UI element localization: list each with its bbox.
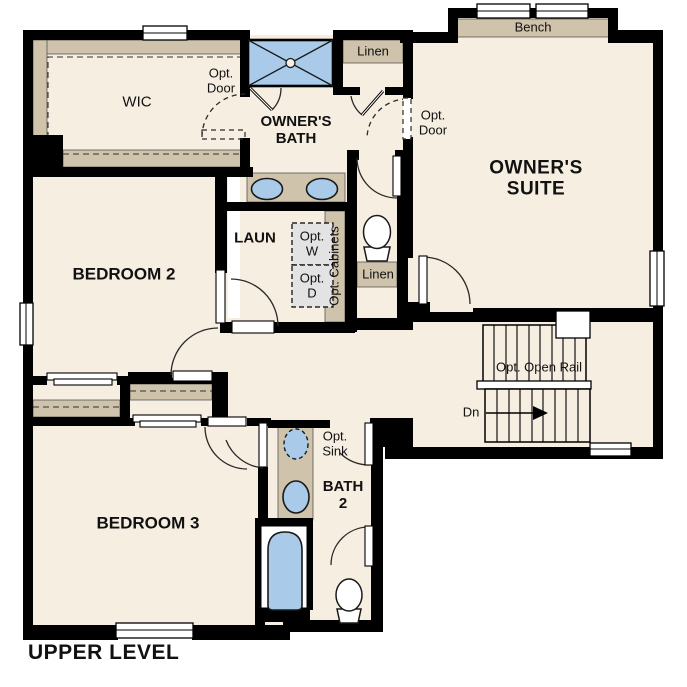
label-owners-bath: OWNER'S BATH xyxy=(260,114,331,148)
window-stair-hall xyxy=(590,443,631,456)
bath2-sink xyxy=(283,481,309,513)
label-opt-washer-line2: W xyxy=(300,244,325,259)
label-linen-upper: Linen xyxy=(357,45,389,60)
label-opt-sink-line2: Sink xyxy=(322,444,347,459)
plan-title: UPPER LEVEL xyxy=(28,641,179,665)
label-opt-washer-line1: Opt. xyxy=(300,229,325,244)
sliding-door-closet-left-panel xyxy=(54,379,112,385)
label-owners-bath-line1: OWNER'S xyxy=(260,114,331,131)
window-bedroom2 xyxy=(20,303,33,345)
label-opt-dryer: Opt. D xyxy=(300,271,325,300)
window-bay-left xyxy=(477,4,530,18)
label-opt-washer: Opt. W xyxy=(300,229,325,258)
label-opt-sink: Opt. Sink xyxy=(322,429,347,458)
label-bedroom3: BEDROOM 3 xyxy=(97,513,200,532)
label-suite-opt-door-line1: Opt. xyxy=(419,108,447,123)
label-suite-opt-door-line2: Door xyxy=(419,123,447,138)
wic-shelf-bottom xyxy=(63,150,243,167)
shower xyxy=(248,40,333,86)
staircase xyxy=(477,311,591,442)
label-linen-hall: Linen xyxy=(362,268,394,283)
closet-shelf-left xyxy=(33,400,120,417)
floor-plan-canvas xyxy=(0,0,687,687)
sliding-door-closet-right-panel xyxy=(140,421,196,427)
floor-plan: WIC Opt. Door OWNER'S BATH Linen Opt. Do… xyxy=(0,0,687,687)
laundry-doorway xyxy=(232,321,274,333)
bath2-compartment-door-leaf xyxy=(365,526,373,566)
bedroom3-doorway xyxy=(208,417,246,426)
label-owners-suite: OWNER'S SUITE xyxy=(489,158,583,201)
label-owners-suite-line2: SUITE xyxy=(489,179,583,200)
label-opt-cabinets: Opt. Cabinets xyxy=(328,226,343,306)
label-wic-opt-door: Opt. Door xyxy=(207,66,235,95)
label-owners-bath-line2: BATH xyxy=(260,131,331,148)
label-opt-open-rail: Opt. Open Rail xyxy=(496,361,582,376)
wic-shelf-left xyxy=(33,40,47,150)
suite-door-leaf xyxy=(419,256,427,304)
label-opt-sink-line1: Opt. xyxy=(322,429,347,444)
owners-sink-left xyxy=(252,179,283,200)
label-down: Dn xyxy=(463,406,480,421)
window-bedroom3 xyxy=(116,623,193,638)
label-laundry: LAUN xyxy=(234,231,276,248)
window-wic xyxy=(143,26,187,40)
label-wic: WIC xyxy=(122,95,151,112)
owners-sink-right xyxy=(307,179,338,200)
closet-shelf-right xyxy=(130,384,212,400)
label-wic-opt-door-line2: Door xyxy=(207,81,235,96)
label-bath2-line2: 2 xyxy=(323,496,364,513)
wc-toilet xyxy=(364,216,391,262)
label-bath2: BATH 2 xyxy=(323,479,364,513)
label-bedroom2: BEDROOM 2 xyxy=(73,264,176,283)
label-opt-dryer-line1: Opt. xyxy=(300,271,325,286)
bath2-opt-sink xyxy=(284,429,308,459)
suite-opt-door-leaf xyxy=(403,98,411,139)
tub xyxy=(268,532,302,610)
label-opt-dryer-line2: D xyxy=(300,286,325,301)
bath2-hall-door-leaf xyxy=(259,423,267,467)
wic-shelf-top xyxy=(33,40,243,54)
bath2-toilet xyxy=(336,579,362,623)
wc-door-leaf xyxy=(393,156,401,196)
label-wic-opt-door-line1: Opt. xyxy=(207,66,235,81)
bedroom2-doorway xyxy=(173,371,212,381)
label-suite-opt-door: Opt. Door xyxy=(419,108,447,137)
bedroom2-door-leaf xyxy=(216,270,225,323)
label-owners-suite-line1: OWNER'S xyxy=(489,158,583,179)
window-bay-right xyxy=(536,4,588,18)
stair-rail xyxy=(477,381,591,389)
bath2-door-leaf xyxy=(365,423,373,465)
shower-drain xyxy=(286,59,295,68)
label-bench: Bench xyxy=(515,21,552,36)
stair-opening xyxy=(556,311,590,338)
window-suite-right xyxy=(650,251,664,306)
label-bath2-line1: BATH xyxy=(323,479,364,496)
